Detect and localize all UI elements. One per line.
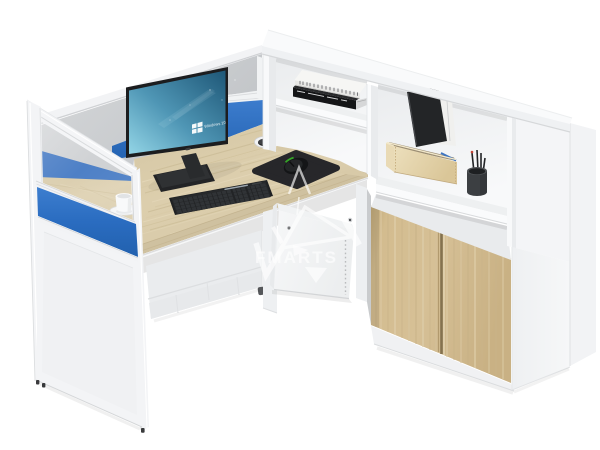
svg-text:FMARTS: FMARTS	[255, 248, 338, 267]
